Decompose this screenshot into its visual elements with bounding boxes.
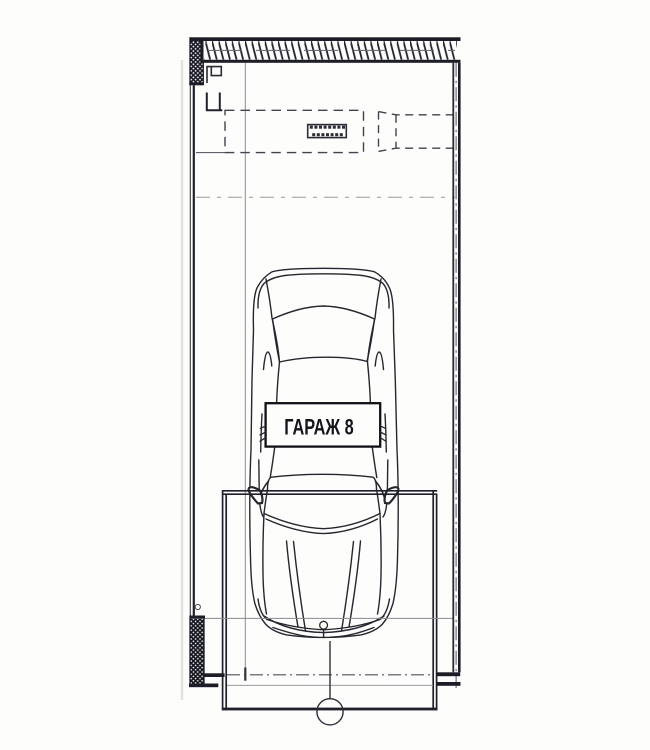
svg-text:ГАРАЖ 8: ГАРАЖ 8 <box>284 414 354 439</box>
